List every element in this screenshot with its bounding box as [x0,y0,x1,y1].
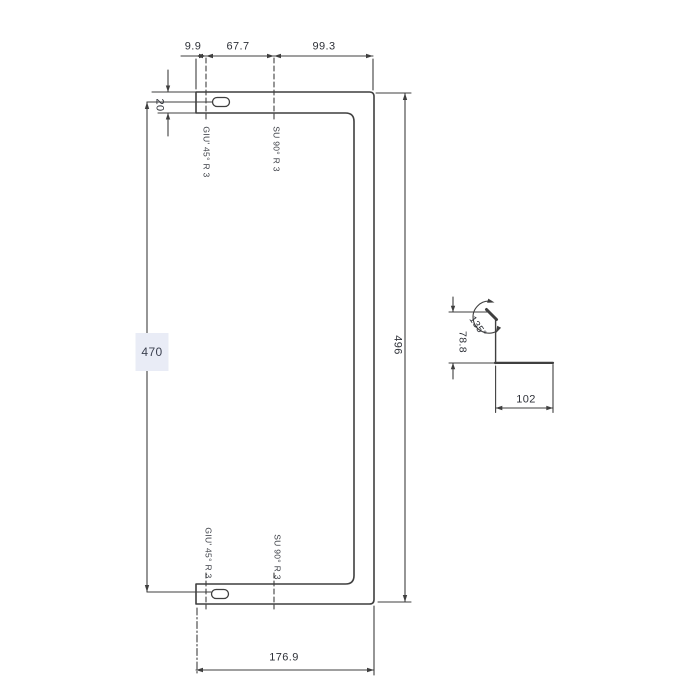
dim-bottom-width [196,606,374,675]
bend-label-top-su90: SU 90° R 3 [272,126,281,172]
dim-label-67-7: 67.7 [226,42,249,53]
drawing-geometry [0,0,700,700]
slot-hole-bottom [212,590,229,599]
dim-label-470: 470 [141,345,162,359]
bend-label-bottom-su90: SU 90° R 3 [273,534,282,580]
technical-drawing: 9.9 67.7 99.3 20 470 496 176.9 GIU' 45° … [0,0,700,700]
dim-top-chain [181,54,373,90]
profile-outline [196,92,374,604]
dimension-highlight-470[interactable]: 470 [136,333,169,371]
slot-hole-top [213,98,230,107]
dim-label-102: 102 [516,395,536,406]
dim-label-20: 20 [154,98,165,111]
bend-lines [206,58,274,609]
bend-label-top-giu45: GIU' 45° R 3 [202,126,211,177]
dim-label-99-3: 99.3 [312,42,335,53]
dim-label-78-8: 78.8 [457,331,468,353]
dim-label-176-9: 176.9 [269,653,299,664]
bend-label-bottom-giu45: GIU' 45° R 3 [204,527,213,578]
dim-label-9-9: 9.9 [185,42,202,53]
dim-label-496: 496 [392,335,403,355]
